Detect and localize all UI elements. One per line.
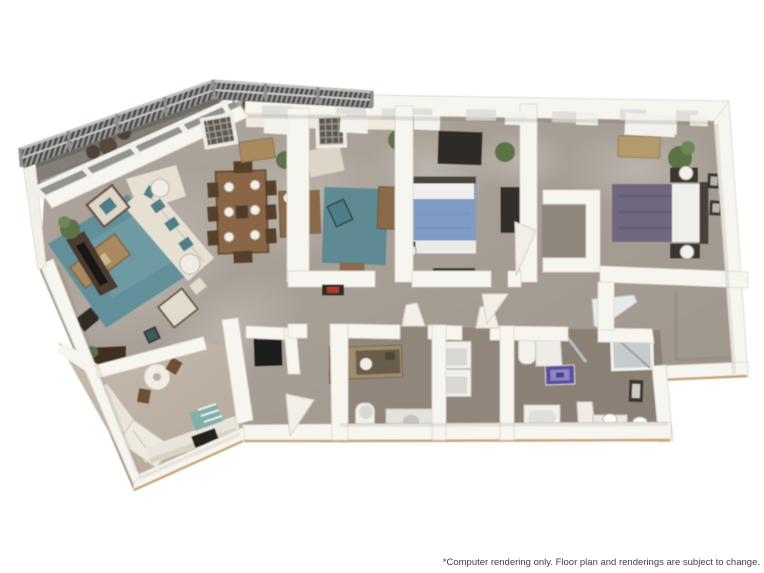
svg-text:*Computer rendering only. Floo: *Computer rendering only. Floor plan and… [443, 557, 760, 568]
